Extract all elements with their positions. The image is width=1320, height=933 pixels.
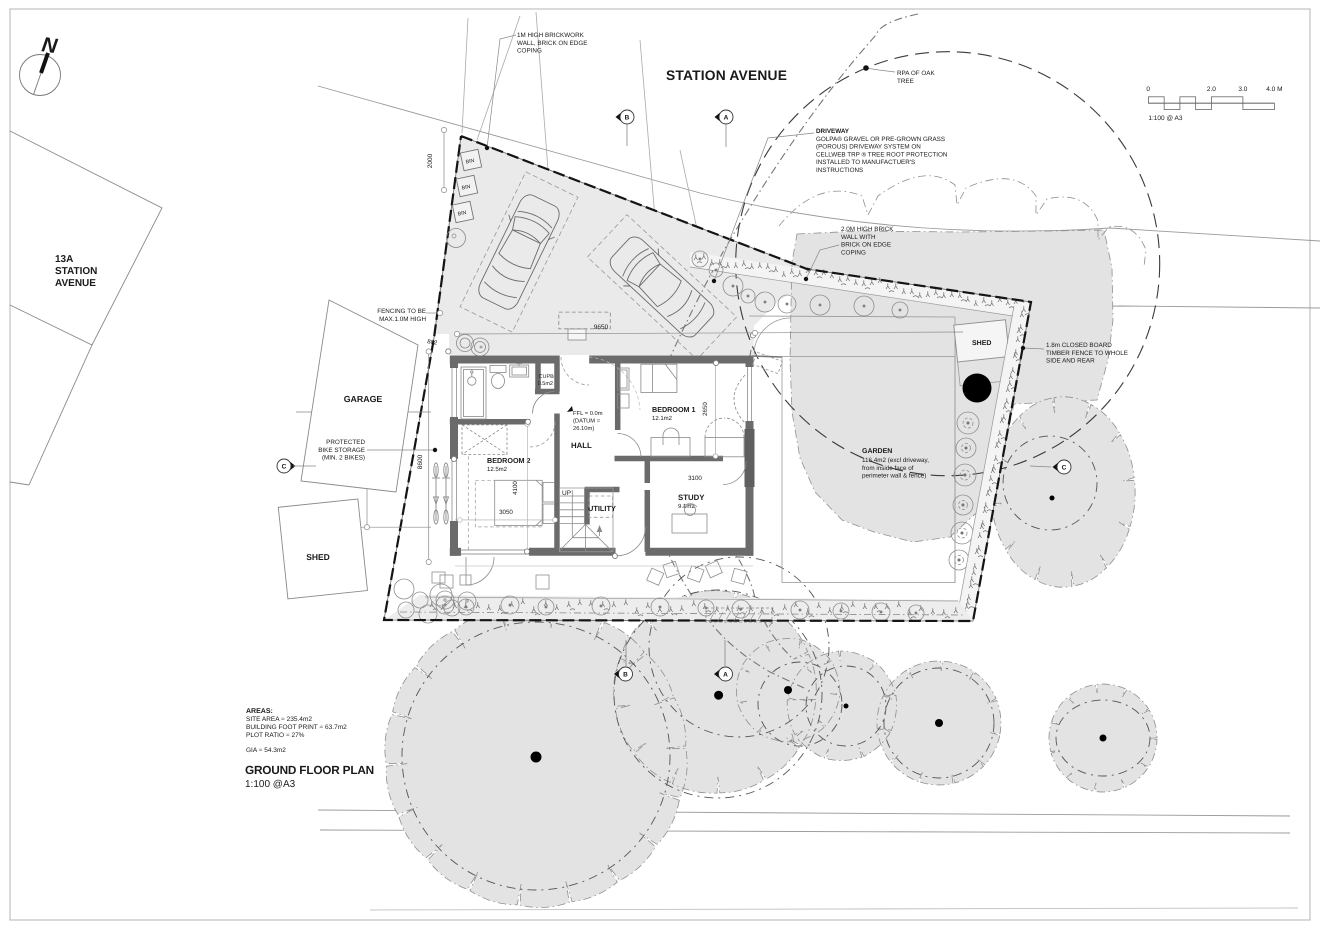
svg-text:BRICK ON EDGE: BRICK ON EDGE [841, 242, 891, 249]
svg-text:C: C [1062, 465, 1067, 472]
svg-text:from inside face of: from inside face of [862, 465, 914, 472]
svg-text:C: C [282, 464, 287, 471]
svg-text:BIKE STORAGE: BIKE STORAGE [318, 447, 365, 454]
svg-text:GARDEN: GARDEN [862, 448, 892, 455]
svg-text:SHED: SHED [306, 552, 330, 562]
svg-text:1:100 @ A3: 1:100 @ A3 [1148, 115, 1182, 122]
svg-text:(MIN. 2 BIKES): (MIN. 2 BIKES) [322, 455, 365, 462]
svg-text:HALL: HALL [571, 441, 592, 450]
svg-text:WALL WITH: WALL WITH [841, 234, 876, 241]
svg-text:INSTALLED TO MANUFACTUER'S: INSTALLED TO MANUFACTUER'S [816, 159, 915, 166]
svg-text:FFL = 0.0m: FFL = 0.0m [573, 410, 603, 417]
svg-text:B: B [625, 115, 630, 122]
svg-text:GOLPA® GRAVEL OR PRE-GROWN GRA: GOLPA® GRAVEL OR PRE-GROWN GRASS [816, 136, 945, 143]
svg-text:DRIVEWAY: DRIVEWAY [816, 128, 850, 135]
svg-text:1.8m CLOSED BOARD: 1.8m CLOSED BOARD [1046, 342, 1112, 349]
svg-text:FENCING TO BE: FENCING TO BE [377, 308, 426, 315]
svg-text:BUILDING FOOT PRINT = 63.7m2: BUILDING FOOT PRINT = 63.7m2 [246, 724, 347, 731]
svg-text:3.0: 3.0 [1238, 86, 1247, 93]
svg-text:perimeter wall & fence): perimeter wall & fence) [862, 473, 926, 480]
svg-text:12.5m2: 12.5m2 [487, 466, 508, 473]
svg-text:AREAS:: AREAS: [246, 708, 273, 715]
svg-text:WALL, BRICK ON EDGE: WALL, BRICK ON EDGE [517, 40, 587, 47]
svg-text:CUPB: CUPB [539, 374, 555, 380]
svg-text:A: A [723, 672, 728, 679]
svg-text:1:100 @A3: 1:100 @A3 [245, 779, 296, 790]
svg-text:RPA OF OAK: RPA OF OAK [897, 70, 935, 77]
svg-text:26.10m): 26.10m) [573, 425, 594, 432]
svg-text:A: A [724, 115, 729, 122]
svg-text:2000: 2000 [427, 153, 434, 168]
svg-text:9650: 9650 [594, 324, 609, 331]
svg-text:GIA = 54.3m2: GIA = 54.3m2 [246, 747, 286, 754]
svg-text:STATION: STATION [55, 266, 97, 277]
svg-text:UP: UP [562, 490, 571, 497]
svg-text:COPING: COPING [841, 249, 866, 256]
svg-text:INSTRUCTIONS: INSTRUCTIONS [816, 167, 863, 174]
svg-text:STUDY: STUDY [678, 493, 705, 502]
svg-text:BEDROOM 2: BEDROOM 2 [487, 456, 531, 465]
svg-text:3100: 3100 [688, 475, 702, 482]
svg-text:8600: 8600 [417, 454, 424, 469]
svg-text:2.0: 2.0 [1207, 86, 1216, 93]
svg-text:AVENUE: AVENUE [55, 278, 96, 289]
svg-text:PLOT RATIO = 27%: PLOT RATIO = 27% [246, 732, 305, 739]
svg-text:SIDE AND REAR: SIDE AND REAR [1046, 358, 1095, 365]
svg-text:12.1m2: 12.1m2 [652, 415, 673, 422]
svg-text:SITE AREA = 235.4m2: SITE AREA = 235.4m2 [246, 716, 312, 723]
svg-text:3050: 3050 [499, 509, 513, 516]
svg-text:(DATUM =: (DATUM = [573, 418, 601, 425]
svg-text:BEDROOM 1: BEDROOM 1 [652, 405, 696, 414]
svg-text:COPING: COPING [517, 48, 542, 55]
svg-text:2.0M HIGH BRICK: 2.0M HIGH BRICK [841, 226, 894, 233]
svg-text:B: B [623, 672, 628, 679]
svg-text:TREE: TREE [897, 78, 914, 85]
svg-text:GARAGE: GARAGE [344, 394, 383, 404]
svg-text:116.4m2 (excl driveway,: 116.4m2 (excl driveway, [862, 457, 929, 464]
svg-text:13A: 13A [55, 254, 73, 265]
svg-text:4100: 4100 [512, 481, 519, 495]
svg-text:CELLWEB TRP ® TREE ROOT PROTEC: CELLWEB TRP ® TREE ROOT PROTECTION [816, 151, 948, 158]
svg-text:2650: 2650 [702, 402, 709, 416]
svg-text:UTILITY: UTILITY [588, 504, 616, 513]
svg-text:1M HIGH BRICKWORK: 1M HIGH BRICKWORK [517, 32, 585, 39]
svg-text:GROUND FLOOR PLAN: GROUND FLOOR PLAN [245, 763, 374, 777]
svg-text:(POROUS) DRIVEWAY SYSTEM ON: (POROUS) DRIVEWAY SYSTEM ON [816, 144, 921, 151]
svg-text:PROTECTED: PROTECTED [326, 439, 365, 446]
svg-text:TIMBER FENCE TO WHOLE: TIMBER FENCE TO WHOLE [1046, 350, 1128, 357]
svg-text:0.5m2: 0.5m2 [538, 381, 553, 387]
svg-text:0: 0 [1146, 86, 1150, 93]
svg-text:SHED: SHED [972, 340, 991, 347]
svg-text:STATION AVENUE: STATION AVENUE [666, 68, 787, 83]
svg-text:MAX.1.0M HIGH: MAX.1.0M HIGH [379, 316, 426, 323]
svg-text:4.0 M: 4.0 M [1266, 86, 1282, 93]
